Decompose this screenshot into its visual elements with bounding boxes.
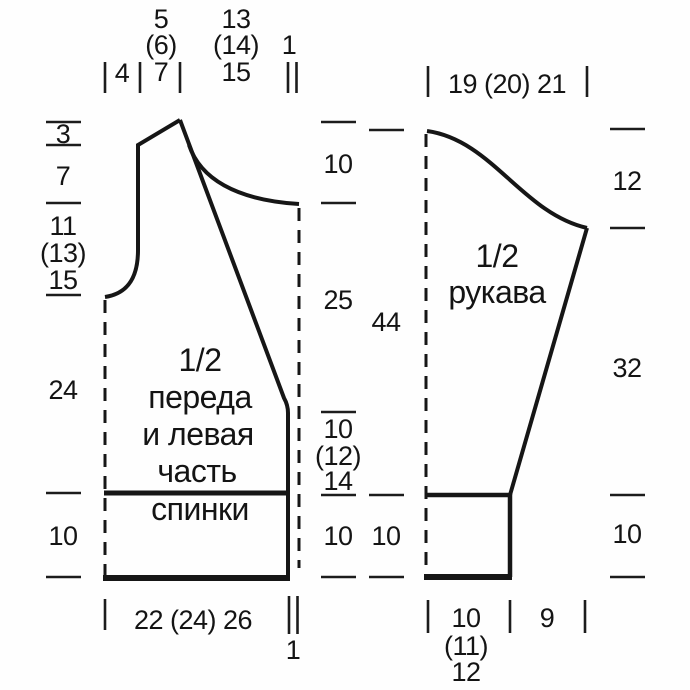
front-lower-section-label-1: 10 xyxy=(323,414,352,444)
front-raglan-length-label: 25 xyxy=(323,285,352,315)
sleeve-cap-curve xyxy=(427,131,587,228)
front-bottom-band-label: 1 xyxy=(286,635,301,665)
sleeve-cuff-width-label-3: 12 xyxy=(451,657,480,687)
front-piece-name-line-4: часть xyxy=(157,453,236,489)
front-armhole-depth-label-2: (13) xyxy=(40,238,86,268)
sleeve-cuff-width-label-1: 10 xyxy=(451,603,480,633)
front-side-length-label: 24 xyxy=(48,375,78,405)
front-neck-width-label-2: (14) xyxy=(213,30,259,60)
front-shoulder-width-label-3: 7 xyxy=(154,57,169,87)
front-shoulder-slope-label: 3 xyxy=(56,119,71,149)
sleeve-cuff-height-label: 10 xyxy=(612,519,641,549)
front-top-band-label: 1 xyxy=(282,30,297,60)
sleeve-piece-name-line-1: 1/2 xyxy=(476,238,519,274)
sleeve-piece xyxy=(424,131,587,577)
front-hem-width-label: 22 (24) 26 xyxy=(134,605,252,635)
front-piece-name-line-5: спинки xyxy=(151,491,249,527)
sleeve-cap-height-label: 12 xyxy=(612,166,641,196)
front-armhole-depth-label-1: 11 xyxy=(49,211,76,241)
front-neck-width-label-3: 15 xyxy=(221,57,250,87)
sleeve-seam-length-label: 32 xyxy=(612,353,641,383)
sleeve-inner-ribbing-label: 10 xyxy=(371,521,400,551)
front-upper-armhole-label: 7 xyxy=(56,161,71,191)
front-piece-name-line-1: 1/2 xyxy=(179,342,222,378)
front-lower-section-label-3: 14 xyxy=(323,466,353,496)
sleeve-underarm-offset-label: 9 xyxy=(540,603,555,633)
pattern-svg: 4 5 (6) 7 13 (14) 15 1 19 (20) 21 3 7 11… xyxy=(0,0,690,690)
front-armhole-and-shoulder-line xyxy=(105,120,180,297)
front-neckline-curve xyxy=(189,145,299,204)
sleeve-top-width-label: 19 (20) 21 xyxy=(448,69,566,99)
knitting-pattern-diagram: 4 5 (6) 7 13 (14) 15 1 19 (20) 21 3 7 11… xyxy=(0,0,690,690)
front-left-ribbing-label: 10 xyxy=(48,521,77,551)
sleeve-underarm-seam-line xyxy=(510,228,587,495)
front-armhole-width-label: 4 xyxy=(115,58,130,88)
front-inner-ribbing-label: 10 xyxy=(323,521,352,551)
front-neck-depth-label: 10 xyxy=(323,149,352,179)
front-shoulder-width-label-2: (6) xyxy=(145,30,177,60)
front-piece-name-line-3: и левая xyxy=(142,416,254,452)
front-piece-name-line-2: переда xyxy=(148,379,252,415)
front-armhole-depth-label-3: 15 xyxy=(48,265,77,295)
sleeve-piece-name-line-2: рукава xyxy=(448,274,546,310)
sleeve-length-label: 44 xyxy=(371,307,401,337)
